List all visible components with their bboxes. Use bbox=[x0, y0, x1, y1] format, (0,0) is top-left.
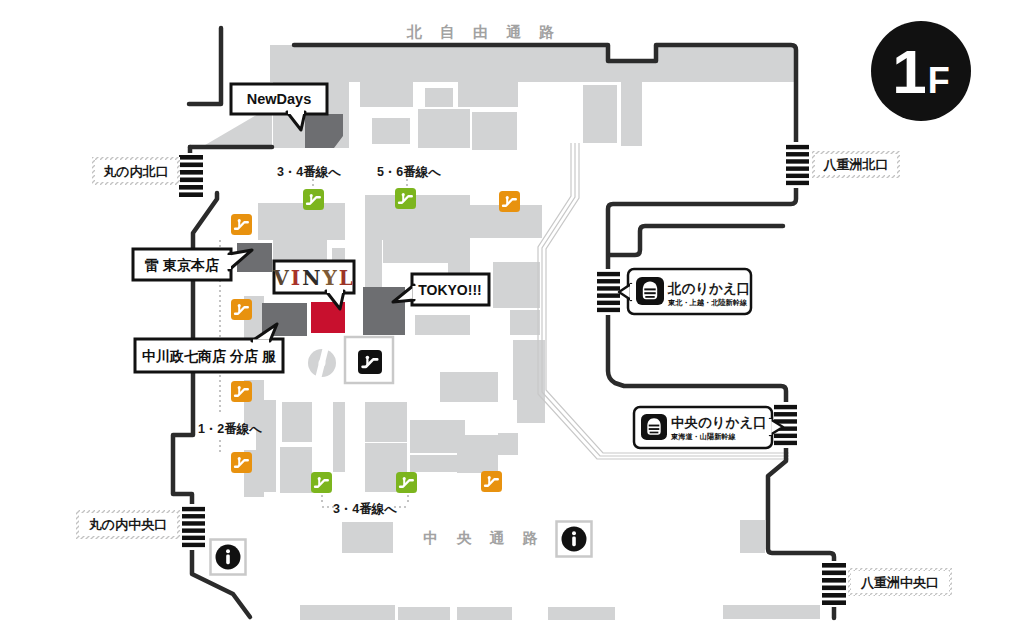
callout-seam bbox=[767, 419, 772, 435]
exit-label-marunouchi-north: 丸の内北口 bbox=[92, 157, 180, 185]
transfer-subtitle: 東北・上越・北陸新幹線 bbox=[667, 298, 748, 307]
information-icon bbox=[557, 522, 592, 557]
map-block bbox=[472, 112, 517, 150]
wall bbox=[610, 226, 783, 255]
gate-backing bbox=[177, 153, 205, 199]
map-block bbox=[621, 82, 642, 146]
callout-seam bbox=[413, 286, 418, 299]
escalator-icon bbox=[396, 472, 417, 493]
map-block bbox=[548, 607, 615, 620]
escalator-icon bbox=[395, 188, 416, 209]
map-block bbox=[365, 402, 407, 442]
escalator-icon bbox=[499, 191, 520, 212]
map-block bbox=[740, 520, 765, 553]
map-block bbox=[256, 400, 276, 492]
map-block bbox=[410, 455, 465, 472]
escalator-icon bbox=[231, 381, 252, 402]
map-block bbox=[333, 402, 345, 472]
vinyl-letter: Y bbox=[321, 266, 338, 290]
map-block bbox=[458, 82, 518, 107]
gate-backing bbox=[820, 561, 848, 607]
callout-text: NewDays bbox=[247, 91, 311, 107]
map-block bbox=[510, 310, 540, 335]
map-block bbox=[342, 522, 393, 553]
transfer-subtitle: 東海道・山陽新幹線 bbox=[670, 432, 737, 441]
transfer-title: 中央のりかえ口 bbox=[671, 415, 767, 430]
map-block bbox=[415, 315, 470, 335]
map-block bbox=[513, 340, 545, 400]
callout-vinyl: VINYL bbox=[272, 261, 355, 309]
map-block bbox=[517, 400, 545, 423]
map-block bbox=[372, 118, 410, 144]
vinyl-letter: N bbox=[302, 266, 322, 290]
map-block bbox=[300, 605, 395, 620]
map-block bbox=[410, 420, 465, 453]
vinyl-letter: I bbox=[291, 266, 302, 290]
vinyl-letter: L bbox=[339, 266, 355, 290]
map-block bbox=[723, 605, 820, 619]
callout-seam bbox=[253, 340, 269, 345]
wall bbox=[189, 28, 221, 104]
escalator-icon bbox=[231, 214, 252, 235]
escalator-icon bbox=[481, 471, 502, 492]
map-block bbox=[457, 435, 498, 473]
escalator-icon bbox=[358, 350, 382, 374]
corridor-notch-patch bbox=[610, 41, 656, 61]
platform-1-2-label: 1・2番線へ bbox=[198, 421, 262, 436]
platform-3-4-bottom-label: 3・4番線へ bbox=[333, 501, 397, 516]
callout-north-transfer: 北のりかえ口 東北・上越・北陸新幹線 bbox=[619, 269, 751, 314]
north-corridor-label: 北 自 由 通 路 bbox=[406, 23, 562, 40]
callout-seam bbox=[226, 255, 231, 269]
map-block bbox=[365, 195, 470, 240]
callout-text: TOKYO!!! bbox=[418, 282, 482, 298]
exit-label-yaesu-central: 八重洲中央口 bbox=[848, 568, 952, 596]
map-block bbox=[365, 240, 382, 288]
escalator-icon bbox=[231, 452, 252, 473]
map-block bbox=[440, 372, 498, 402]
shop-tokyo bbox=[363, 287, 405, 335]
map-block bbox=[493, 262, 540, 308]
stair-shape bbox=[308, 346, 336, 380]
exit-label-text: 丸の内北口 bbox=[102, 164, 168, 179]
exit-label-text: 八重洲中央口 bbox=[860, 575, 939, 590]
callout-text: 中川政七商店 分店 服 bbox=[142, 348, 277, 364]
gate-yaesu-north bbox=[784, 142, 811, 188]
map-block bbox=[360, 82, 413, 107]
floor-letter: F bbox=[928, 60, 950, 101]
map-block bbox=[457, 607, 512, 620]
station-floor-map: 北 自 由 通 路 中 央 通 路 3・4番線へ 5・6番線へ 1・2番線へ 3… bbox=[0, 0, 1024, 631]
shinkansen-icon bbox=[641, 414, 667, 440]
exit-label-marunouchi-central: 丸の内中央口 bbox=[76, 510, 180, 539]
callout-kaminari: 雷 東京本店 bbox=[133, 249, 252, 280]
map-block bbox=[280, 447, 312, 493]
exit-label-text: 八重洲北口 bbox=[823, 157, 889, 172]
map-block bbox=[425, 88, 453, 107]
exit-label-yaesu-north: 八重洲北口 bbox=[812, 151, 900, 178]
floor-map-canvas: 北 自 由 通 路 中 央 通 路 3・4番線へ 5・6番線へ 1・2番線へ 3… bbox=[0, 0, 1024, 631]
gate-marunouchi-north bbox=[177, 153, 205, 199]
vinyl-letter: V bbox=[272, 266, 291, 290]
platform-5-6-label: 5・6番線へ bbox=[377, 164, 441, 179]
platform-3-4-top-label: 3・4番線へ bbox=[277, 164, 341, 179]
stair-hole bbox=[319, 360, 326, 367]
information-icon bbox=[211, 540, 246, 575]
shinkansen-icon bbox=[636, 277, 664, 305]
vinyl-logo-text: VINYL bbox=[272, 266, 355, 290]
map-block bbox=[258, 203, 345, 240]
gate-yaesu-central bbox=[820, 561, 848, 607]
callout-seam bbox=[288, 109, 304, 114]
escalator-icon bbox=[303, 189, 324, 210]
callout-seam bbox=[630, 284, 634, 300]
map-block bbox=[282, 402, 312, 442]
floor-number: 1 bbox=[892, 37, 926, 106]
callout-text: 雷 東京本店 bbox=[144, 257, 219, 273]
transfer-title: 北のりかえ口 bbox=[667, 281, 750, 296]
callout-tokyo: TOKYO!!! bbox=[393, 274, 489, 305]
map-block bbox=[498, 433, 518, 455]
map-block bbox=[398, 607, 450, 620]
exit-label-text: 丸の内中央口 bbox=[88, 517, 167, 532]
map-block bbox=[270, 45, 796, 82]
escalator-icon bbox=[231, 299, 252, 320]
map-block bbox=[583, 85, 617, 143]
central-corridor-label: 中 央 通 路 bbox=[423, 529, 545, 546]
map-block bbox=[418, 109, 470, 148]
escalator-icon bbox=[311, 472, 332, 493]
callout-central-transfer: 中央のりかえ口 東海道・山陽新幹線 bbox=[634, 407, 783, 448]
gate-marunouchi-central bbox=[180, 504, 207, 550]
map-block bbox=[383, 240, 448, 263]
floor-badge: 1F bbox=[871, 21, 971, 121]
